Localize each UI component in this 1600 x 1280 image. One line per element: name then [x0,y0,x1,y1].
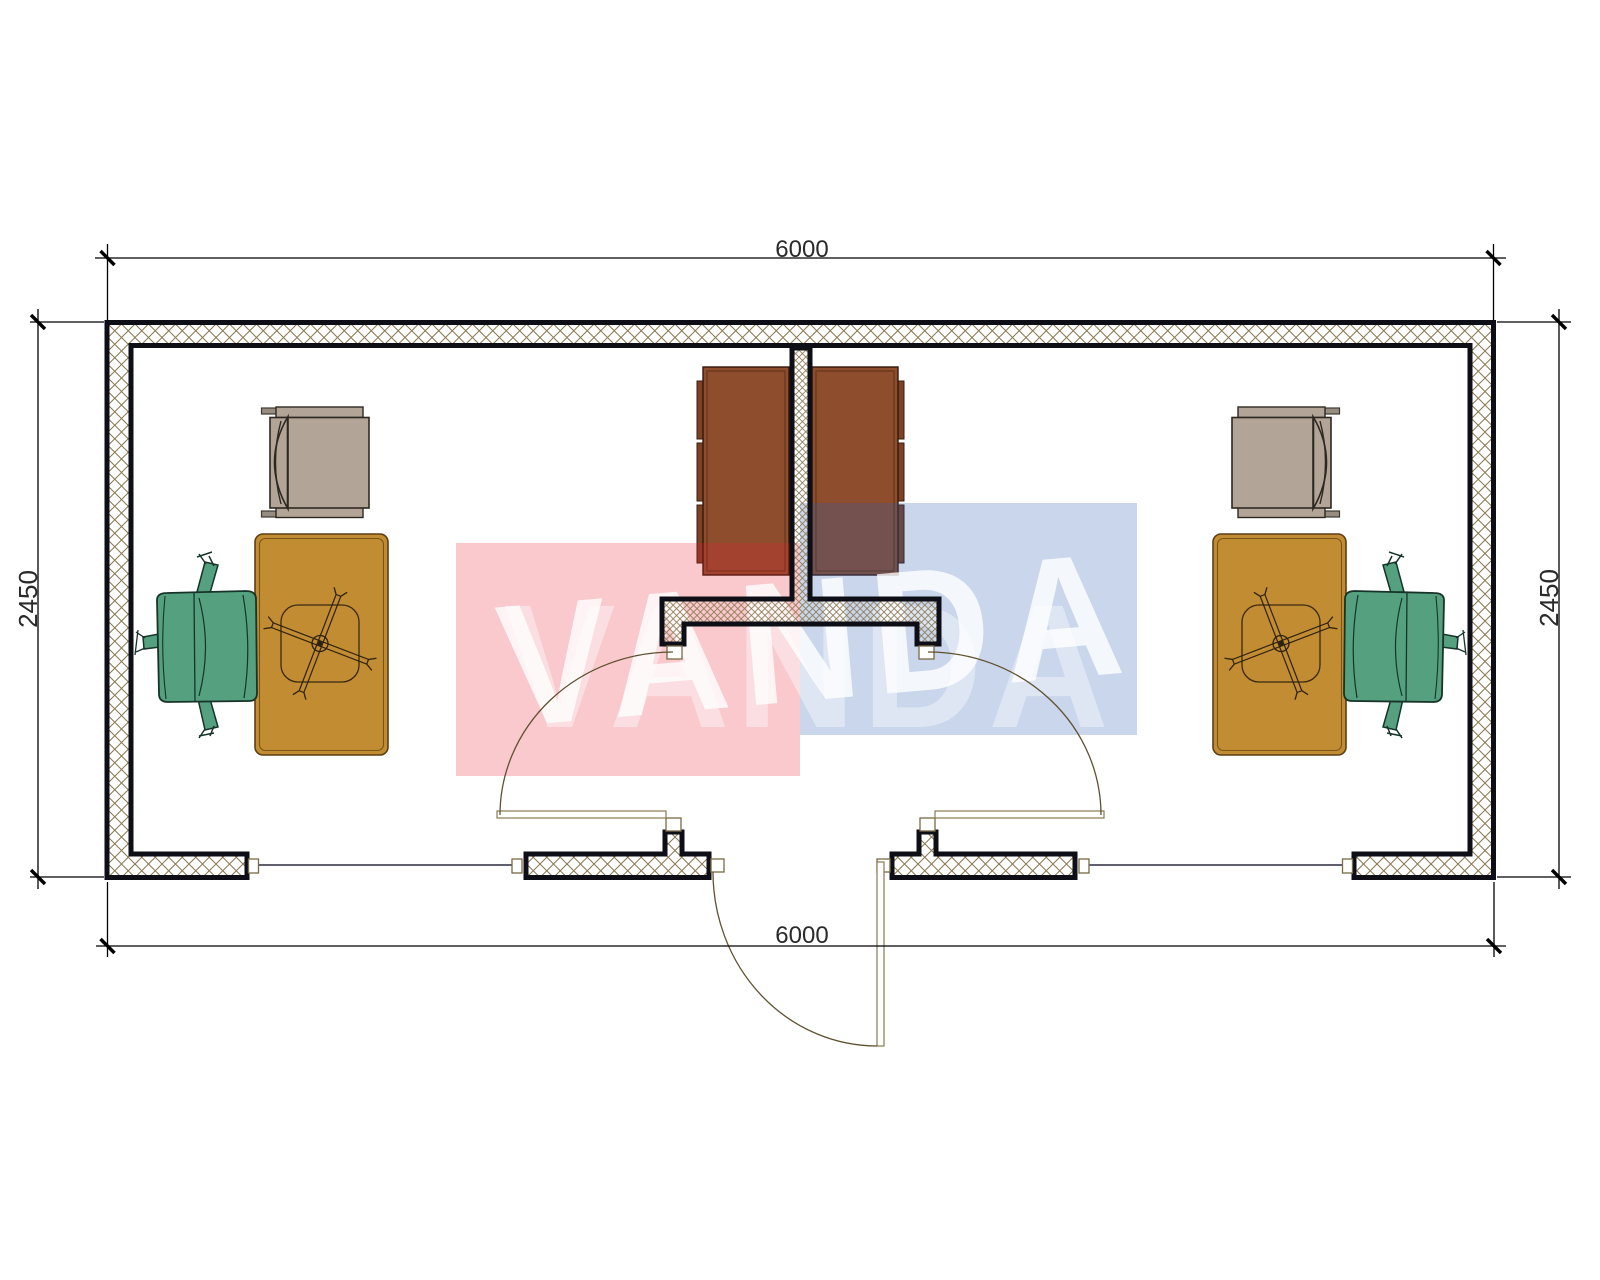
svg-text:2450: 2450 [1534,569,1564,627]
svg-text:6000: 6000 [775,922,828,949]
svg-text:6000: 6000 [775,236,828,263]
svg-text:2450: 2450 [13,570,43,628]
